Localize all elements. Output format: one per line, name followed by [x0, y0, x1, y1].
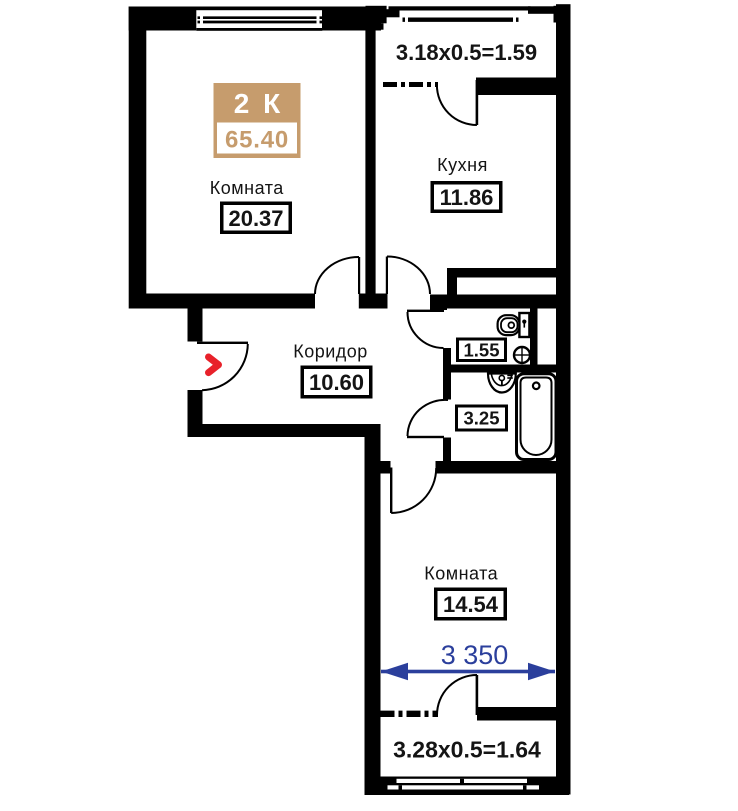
svg-text:3 350: 3 350 — [441, 640, 509, 670]
svg-text:65.40: 65.40 — [225, 127, 289, 154]
svg-text:3.18x0.5=1.59: 3.18x0.5=1.59 — [396, 40, 537, 65]
svg-text:3.28x0.5=1.64: 3.28x0.5=1.64 — [393, 737, 541, 763]
svg-text:2 К: 2 К — [234, 88, 283, 119]
svg-text:Комната: Комната — [210, 178, 284, 198]
svg-text:3.25: 3.25 — [463, 408, 499, 429]
svg-text:Коридор: Коридор — [293, 342, 368, 362]
svg-text:11.86: 11.86 — [440, 185, 494, 210]
svg-text:20.37: 20.37 — [228, 206, 283, 231]
svg-text:10.60: 10.60 — [309, 370, 364, 395]
svg-text:14.54: 14.54 — [443, 592, 499, 617]
svg-text:Кухня: Кухня — [437, 155, 488, 175]
svg-text:1.55: 1.55 — [463, 340, 499, 361]
svg-text:Комната: Комната — [424, 564, 498, 584]
